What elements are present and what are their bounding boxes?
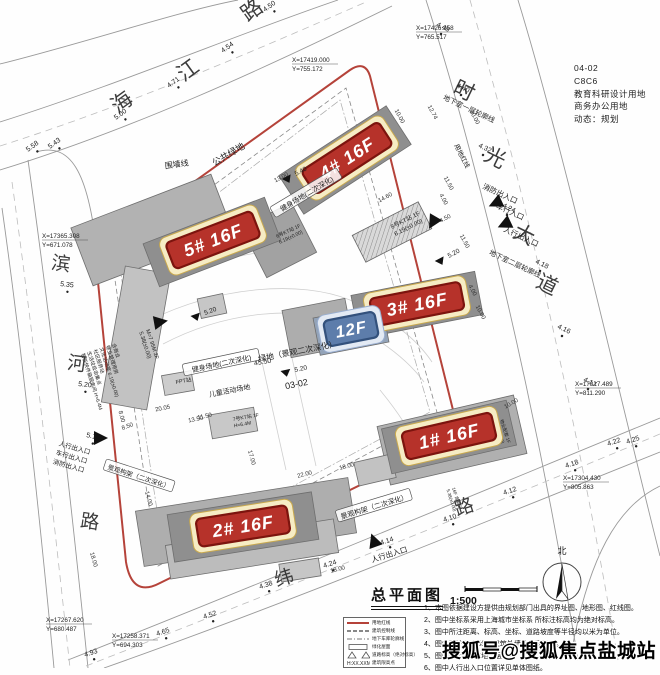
elevation-value: 4.18 [534,259,549,271]
north-arrow-icon: 北 [536,545,590,607]
legend-row: 道路标高（绝对标高） [346,651,403,659]
site-label: 儿童活动场地 [208,382,251,399]
dimension-text: 8.00 [117,410,126,423]
elevation-dot [560,334,563,337]
utility-block [352,202,432,262]
dimension-value: 4.50 [439,213,453,224]
dimension-value: 8.00 [117,410,126,423]
coordinate-x: X=17267.620 [46,617,84,624]
scale-bar [463,583,543,595]
site-label: 健身场地(二次深化) [182,348,260,376]
road-name-text: 路 [79,510,101,534]
elevation-dot [93,658,96,661]
site-label-text: 围墙线 [164,157,189,170]
elevation-value: 4.65 [155,627,170,638]
legend-symbol-icon [346,635,370,643]
coordinate-callout: X=17419.000Y=755.172 [292,57,338,73]
level-marker: 5.20 [280,364,308,377]
coordinate-callout: X=17426.358Y=765.517 [416,25,462,41]
entrance-triangle [94,431,108,445]
elevation-point: 4.65 [155,627,172,642]
legend-row: 用地红线 [346,619,403,627]
legend-symbol-icon [346,643,370,651]
elevation-value: 4.14 [379,536,394,547]
coordinate-y: Y=765.517 [416,34,447,41]
elevation-dot [273,10,276,13]
dimension-value: 4.00 [437,193,448,207]
legend-symbol-icon: H:XX.XXM [346,659,370,667]
elevation-dot [84,390,87,393]
elevation-point: 5.35 [59,281,74,294]
elevation-dot [212,620,215,623]
legend-label: 用地红线 [372,620,390,626]
elevation-value: 4.38 [258,580,273,591]
road-name-text: 河 [66,352,88,376]
site-label: 用地红线 [452,142,472,170]
dimension-text: 4.00 [437,193,448,207]
site-label-text: 用地红线 [452,142,472,170]
level-marker: 5.20 [434,247,462,267]
dimension-value: 12.74 [426,104,439,121]
parcel-info-line: 商务办公用地 [574,100,646,113]
legend-row: 地下车库轮廓线 [346,635,403,643]
elevation-value: 5.20 [78,381,92,389]
coordinate-x: X=17258.371 [112,633,150,640]
elevation-dot [452,523,455,526]
site-label: 公共绿地 [210,140,247,168]
dimension-value: 18.00 [339,462,356,472]
legend-label: 地下车库轮廓线 [372,636,404,642]
dimension-value: 14.00 [143,491,153,508]
elevation-dot [616,447,619,450]
dimension-value: 11.50 [442,176,454,192]
elevation-point: 5.58 [25,140,43,157]
coordinate-y: Y=671.078 [42,242,73,249]
dimension-text: 17.00 [246,450,256,467]
entrance-arrow-icon [94,431,108,445]
site-plan-canvas: M=7 95M 2F5.38(±0.00)含商业物业管理用房文化活动室 6.19… [0,0,660,668]
elevation-value: 5.35 [60,281,74,289]
coordinate-callout: X=17267.620Y=680.487 [46,617,92,633]
note-item: 2、图中坐标系采用上海城市坐标系 所标注标高均为绝对标高。 [424,615,660,627]
legend-label: 建筑控制线 [372,628,395,634]
elevation-value: 4.10 [442,513,457,524]
elevation-value: 4.16 [556,324,571,336]
level-marker-triangle-icon [280,369,291,378]
dimension-value: 11.50 [458,234,470,250]
elevation-dot [231,51,234,54]
dimension-text: 12.74 [426,104,439,121]
coordinate-x: X=17426.358 [416,25,454,32]
parcel-info-line: 教育科研设计用地 [574,88,646,101]
building-footprint-rect [197,294,227,319]
road-name-char: 河 [66,352,88,376]
elevation-point: 4.18 [564,459,581,474]
coordinate-y: Y=805.863 [563,484,594,491]
legend-symbol-icon [346,619,370,627]
elevation-dot [91,442,94,445]
site-label-text: 儿童活动场地 [208,382,251,399]
watermark: 搜狐号@搜狐焦点盐城站 [442,636,656,663]
elevation-dot [165,637,168,640]
dimension-value: 8.50 [121,422,135,432]
road-name-char: 路 [79,510,101,534]
parcel-info-block: 04-02C8C6教育科研设计用地商务办公用地动态：规划 [574,62,646,126]
legend-box: 用地红线建筑控制线地下车库轮廓线绿化屋面道路标高（绝对标高）H:XX.XXM建筑… [343,617,406,668]
elevation-value: 4.12 [502,486,517,497]
dimension-text: 4.50 [439,213,453,224]
elevation-point: 5.20 [77,381,92,394]
dimension-text: 18.00 [339,462,356,472]
elevation-dot [512,496,515,499]
elevation-value: 4.52 [202,610,217,621]
level-marker-value: 5.20 [294,364,308,374]
elevation-point: 4.54 [220,41,238,58]
elevation-dot [58,147,61,150]
dimension-text: 11.50 [458,234,470,250]
dimension-text: 18.00 [88,552,98,569]
site-label-text: 公共绿地 [210,140,247,168]
site-label-text: 03-02 [284,377,309,391]
road-name-text: 路 [237,0,268,26]
coordinate-y: Y=680.487 [46,626,77,633]
svg-text:H:XX.XXM: H:XX.XXM [347,661,370,667]
legend-symbol-icon [346,651,370,659]
elevation-dot [177,86,180,89]
legend-row: 绿化屋面 [346,643,403,651]
coordinate-y: Y=811.290 [575,390,606,397]
coordinate-x: X=17304.430 [563,475,601,482]
coordinate-y: Y=694.303 [112,642,143,649]
elevation-value: 4.25 [625,435,640,446]
dimension-text: 11.50 [442,176,454,192]
legend-label: 绿化屋面 [372,644,390,650]
site-label: 03-02 [284,377,309,391]
legend-label: 道路标高（绝对标高） [372,652,418,658]
dimension-value: 22.00 [297,470,314,480]
legend-row: H:XX.XXM建筑限高点 [346,659,403,667]
dimension-text: 14.60 [377,192,394,205]
elevation-value: 4.22 [606,437,621,448]
legend-row: 建筑控制线 [346,627,403,635]
coordinate-callout: X=17304.430Y=805.863 [563,475,609,491]
parcel-info-line: 04-02 [574,62,646,75]
parcel-info-line: C8C6 [574,75,646,88]
dimension-text: 14.00 [143,491,153,508]
coordinate-y: Y=755.172 [292,66,323,73]
elevation-dot [268,590,271,593]
coordinate-callout: X=17258.371Y=694.303 [112,633,158,649]
building-footprint [197,294,227,319]
elevation-dot [66,290,69,293]
coordinate-x: X=17365.308 [42,233,80,240]
elevation-point: 4.16 [554,324,571,340]
road-name-char: 滨 [50,252,72,276]
dimension-value: 20.05 [155,404,172,413]
legend-label: 建筑限高点 [372,660,395,666]
note-item: 6、图中人行出入口位置详见单体图纸。 [424,663,660,675]
north-label: 北 [557,546,566,556]
elevation-dot [36,150,39,153]
elevation-point: 4.52 [202,610,219,625]
road-name-text: 滨 [50,252,72,276]
dimension-text: 8.50 [121,422,135,432]
dimension-text: 22.00 [297,470,314,480]
dimension-value: 17.00 [246,450,256,467]
level-marker-triangle-icon [435,256,447,267]
dimension-value: 18.00 [88,552,98,569]
dimension-text: 20.05 [155,404,172,413]
dimension-value: 14.60 [377,192,394,205]
road-name-char: 路 [237,0,268,26]
hatched-rect [352,202,432,262]
elevation-dot [124,118,127,121]
note-item: 1、本图依据建设方提供由规划部门出具的界址图、地形图、红线图。 [424,603,660,615]
elevation-dot [635,445,638,448]
level-marker-value: 5.20 [447,247,462,259]
elevation-point: 4.12 [502,486,519,501]
site-label: 景观构架（二次深化） [103,459,175,492]
coordinate-callout: X=17317.489Y=811.290 [575,381,621,397]
coordinate-x: X=17419.000 [292,57,330,64]
parcel-info-line: 动态：规划 [574,113,646,126]
legend-symbol-icon [346,627,370,635]
coordinate-x: X=17317.489 [575,381,613,388]
site-label: 围墙线 [164,157,189,170]
